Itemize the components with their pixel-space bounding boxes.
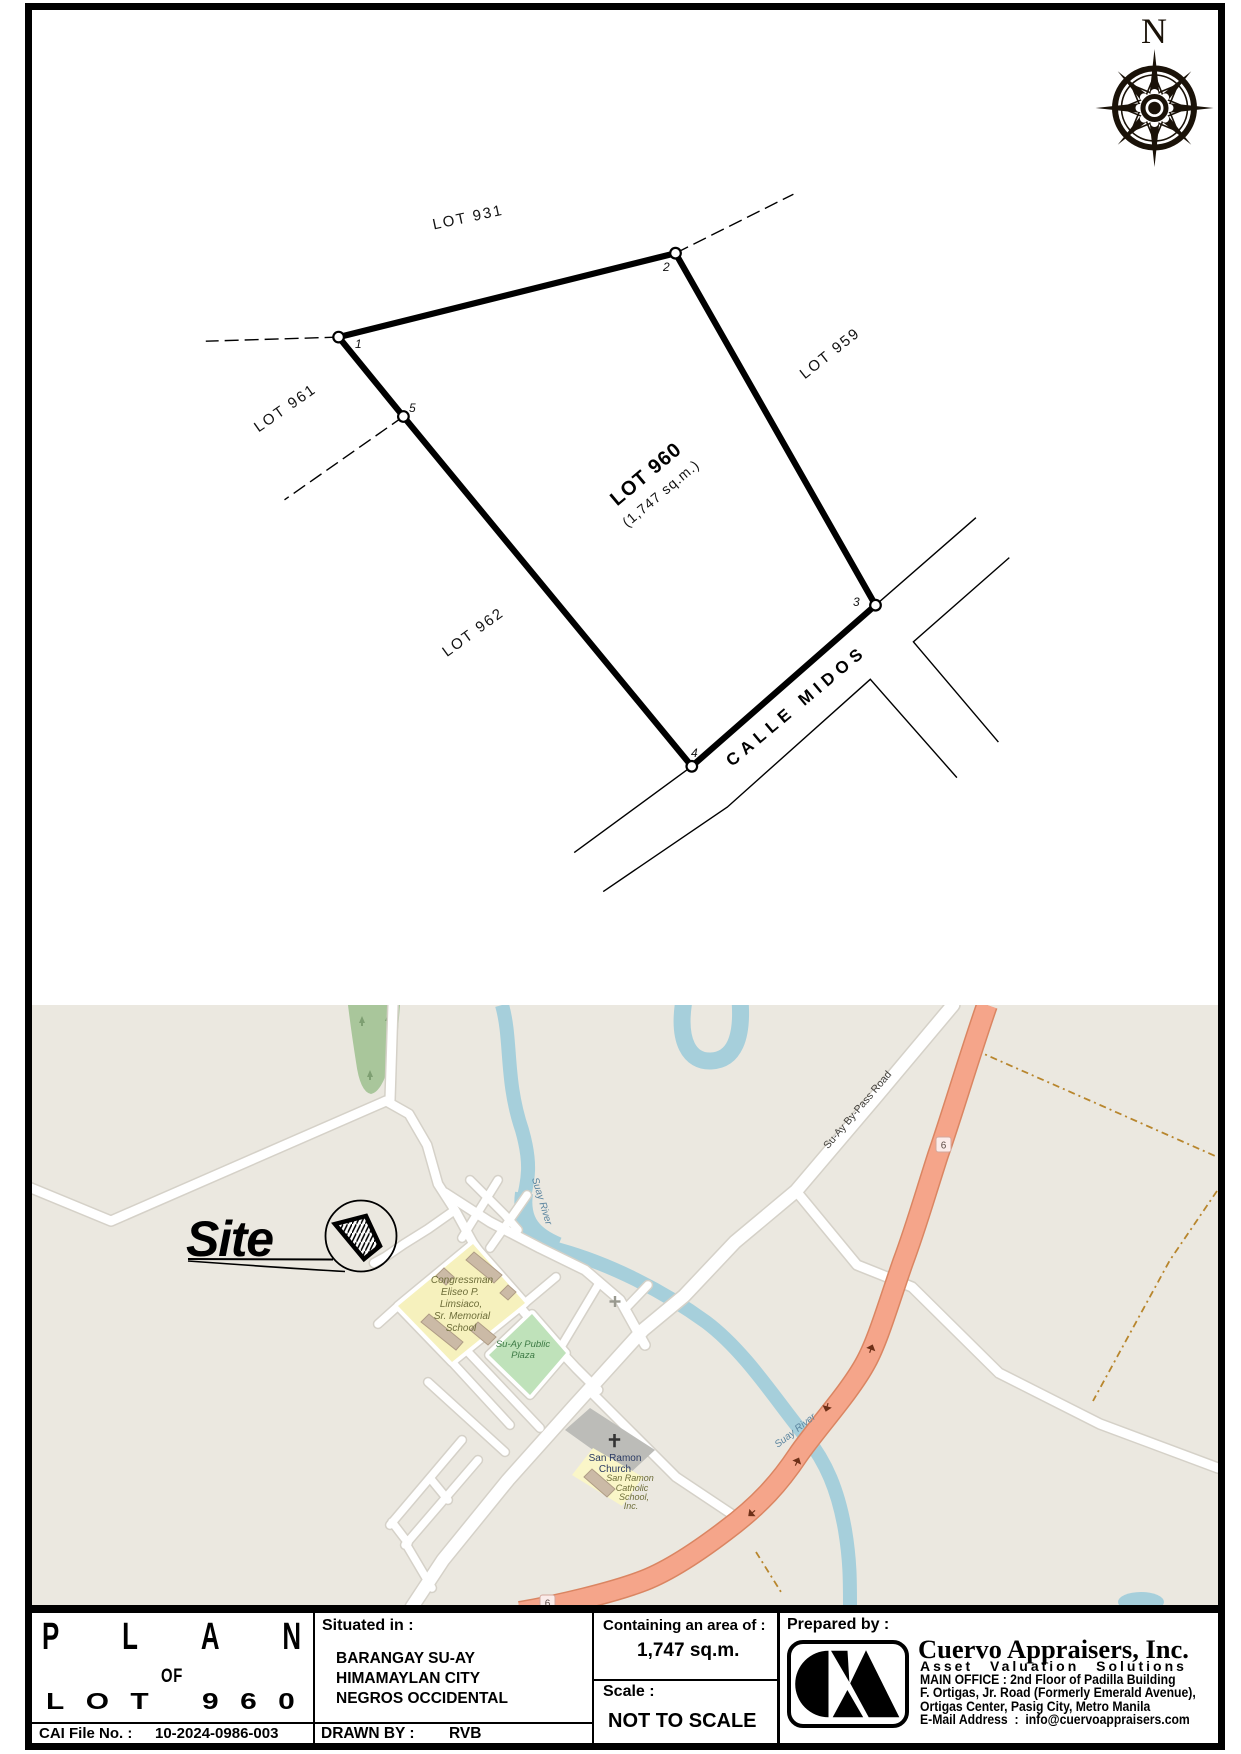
svg-text:Site: Site	[186, 1211, 274, 1267]
svg-text:LOT 959: LOT 959	[797, 324, 864, 382]
svg-text:1: 1	[355, 337, 362, 351]
svg-text:Su-Ay Public: Su-Ay Public	[496, 1339, 551, 1350]
svg-text:Sr. Memorial: Sr. Memorial	[434, 1311, 491, 1322]
svg-text:Church: Church	[599, 1464, 631, 1475]
svg-text:6: 6	[941, 1141, 947, 1152]
svg-text:Limsiaco,: Limsiaco,	[440, 1299, 482, 1310]
svg-text:CALLE MIDOS: CALLE MIDOS	[722, 641, 870, 770]
svg-text:5: 5	[409, 401, 416, 415]
svg-text:LOT 961: LOT 961	[251, 381, 320, 436]
svg-text:Plaza: Plaza	[511, 1350, 535, 1361]
svg-text:N: N	[1141, 11, 1167, 51]
svg-text:Inc.: Inc.	[624, 1501, 639, 1511]
svg-text:3: 3	[853, 595, 860, 609]
svg-text:School: School	[446, 1323, 477, 1334]
svg-text:LOT 931: LOT 931	[431, 202, 505, 234]
svg-text:Eliseo P.: Eliseo P.	[441, 1287, 479, 1298]
svg-text:Congressman: Congressman	[431, 1275, 494, 1286]
svg-text:San Ramon: San Ramon	[589, 1453, 642, 1464]
svg-text:LOT 962: LOT 962	[439, 604, 507, 660]
svg-text:2: 2	[662, 260, 670, 274]
svg-text:4: 4	[691, 746, 698, 760]
